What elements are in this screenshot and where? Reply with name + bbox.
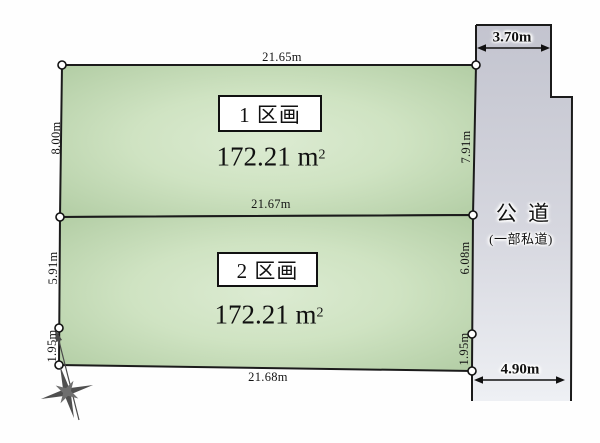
dimension-left-3: 1.95m	[46, 329, 59, 362]
parcel-2-area-value: 172.21	[214, 300, 288, 330]
road-name-label: 公 道	[496, 204, 552, 225]
corner-marker	[469, 211, 477, 219]
parcel-1-label: 1 区画	[239, 99, 301, 129]
corner-marker	[56, 213, 64, 221]
dimension-left-2: 5.91m	[47, 251, 60, 284]
dimension-bottom-width: 21.68m	[248, 371, 288, 384]
road-note-label: (一部私道)	[489, 233, 553, 246]
dimension-middle-width: 21.67m	[251, 198, 291, 211]
corner-marker	[58, 61, 66, 69]
parcel-1-area-unit: m2	[297, 142, 325, 172]
dimension-top-width: 21.65m	[262, 51, 302, 64]
dimension-right-3: 1.95m	[458, 332, 471, 365]
parcel-1-area-value: 172.21	[216, 142, 290, 172]
parcel-2-area-unit: m2	[295, 300, 323, 330]
parcel-2-area: 172.21 m2	[214, 302, 323, 329]
road-top-width-label: 3.70m	[493, 31, 532, 46]
road-bottom-width-label: 4.90m	[501, 363, 540, 378]
corner-marker	[472, 61, 480, 69]
parcel-2-label-box: 2 区画	[217, 252, 318, 287]
dimension-left-1: 8.00m	[50, 121, 63, 154]
dimension-right-1: 7.91m	[460, 130, 473, 163]
parcel-1-label-box: 1 区画	[218, 95, 322, 132]
dimension-right-2: 6.08m	[459, 241, 472, 274]
land-plot-diagram: 21.65m 21.67m 21.68m 8.00m 5.91m 1.95m 7…	[0, 0, 600, 443]
parcel-2-label: 2 区画	[237, 255, 299, 285]
parcel-1-area: 172.21 m2	[216, 144, 325, 171]
parcel-2	[59, 215, 473, 371]
corner-marker	[468, 367, 476, 375]
